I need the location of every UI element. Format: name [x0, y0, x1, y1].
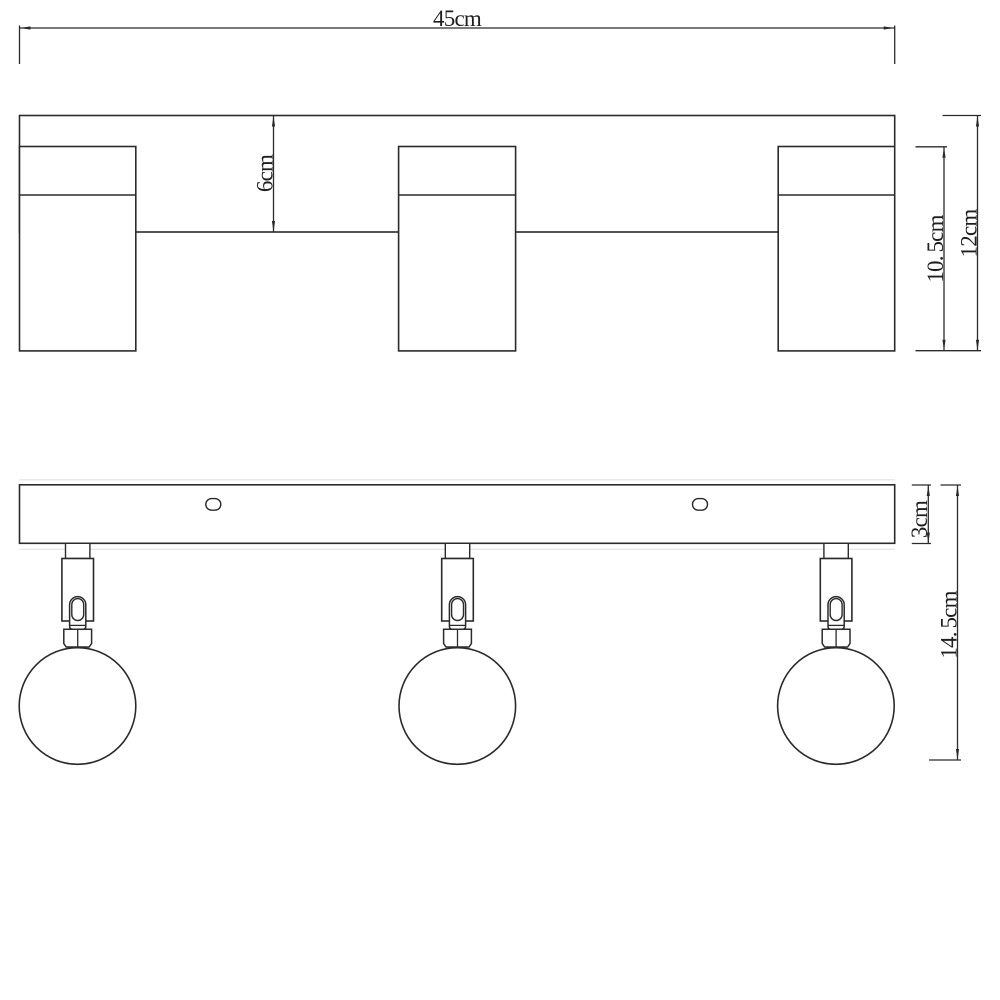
svg-text:12cm: 12cm: [957, 209, 982, 258]
svg-text:6cm: 6cm: [252, 154, 277, 192]
svg-text:14. 5cm: 14. 5cm: [937, 590, 962, 658]
svg-text:3cm: 3cm: [907, 500, 932, 538]
svg-text:45cm: 45cm: [433, 6, 482, 31]
svg-text:10. 5cm: 10. 5cm: [923, 214, 948, 282]
